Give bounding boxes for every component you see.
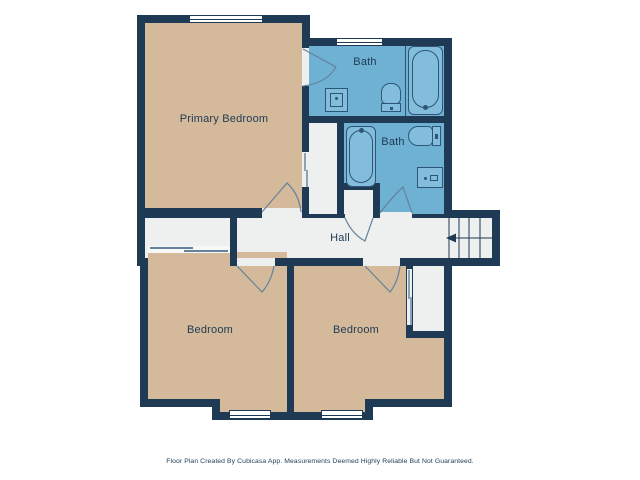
toilet-icon	[408, 126, 433, 146]
sink-icon	[417, 167, 443, 188]
label-bath-top: Bath	[353, 56, 376, 68]
sink-basin	[330, 93, 343, 107]
label-primary-bedroom: Primary Bedroom	[180, 113, 269, 125]
bathtub-faucet	[423, 105, 428, 110]
sink-faucet	[335, 97, 338, 100]
window-bay-right	[321, 410, 363, 419]
floor-plan-page: Primary Bedroom Bath Bath Hall Bedroom B…	[0, 0, 640, 480]
door-opening-bedroom-right	[363, 258, 400, 266]
toilet-icon	[381, 83, 401, 104]
label-bath-mid: Bath	[381, 136, 404, 148]
wall-hall-south-2	[400, 258, 500, 266]
wall-hall-south-1	[275, 258, 363, 266]
label-hall: Hall	[330, 232, 350, 244]
door-opening-closet-hall	[345, 214, 373, 218]
door-opening-closet-primary	[302, 152, 309, 187]
window-primary	[189, 15, 263, 23]
sink-basin	[430, 175, 438, 181]
footer-disclaimer: Floor Plan Created By Cubicasa App. Meas…	[0, 458, 640, 465]
toilet-button	[435, 134, 438, 139]
wall-right-closet-bottom	[406, 331, 452, 338]
toilet-button	[390, 107, 393, 110]
door-opening-bedroom-left	[237, 258, 275, 266]
toilet-tank	[432, 126, 441, 146]
wall-hall-closet-right	[373, 190, 380, 214]
wall-bedroom-divider	[287, 258, 294, 420]
door-opening-bath-mid	[380, 212, 412, 218]
wall-closet-hall-divider	[230, 218, 237, 266]
bathtub-basin	[412, 50, 439, 108]
sink-icon	[325, 88, 348, 112]
label-bedroom-right: Bedroom	[333, 324, 379, 336]
bathtub-icon	[346, 126, 376, 187]
door-opening-primary	[262, 208, 302, 218]
bathtub-basin	[349, 130, 373, 183]
window-bath-top	[336, 38, 383, 46]
bathtub-icon	[408, 46, 443, 115]
label-bedroom-left: Bedroom	[187, 324, 233, 336]
closet-primary	[309, 123, 337, 214]
closet-bedroom-right	[413, 266, 444, 331]
window-bay-left	[229, 410, 271, 419]
bathtub-faucet	[359, 128, 364, 133]
closet-hall	[344, 190, 373, 214]
door-opening-closet-right	[407, 269, 412, 325]
bathtub-wall-line	[405, 46, 406, 116]
sink-faucet	[424, 177, 427, 180]
toilet-tank	[381, 103, 401, 112]
door-opening-bath-top	[302, 48, 309, 86]
